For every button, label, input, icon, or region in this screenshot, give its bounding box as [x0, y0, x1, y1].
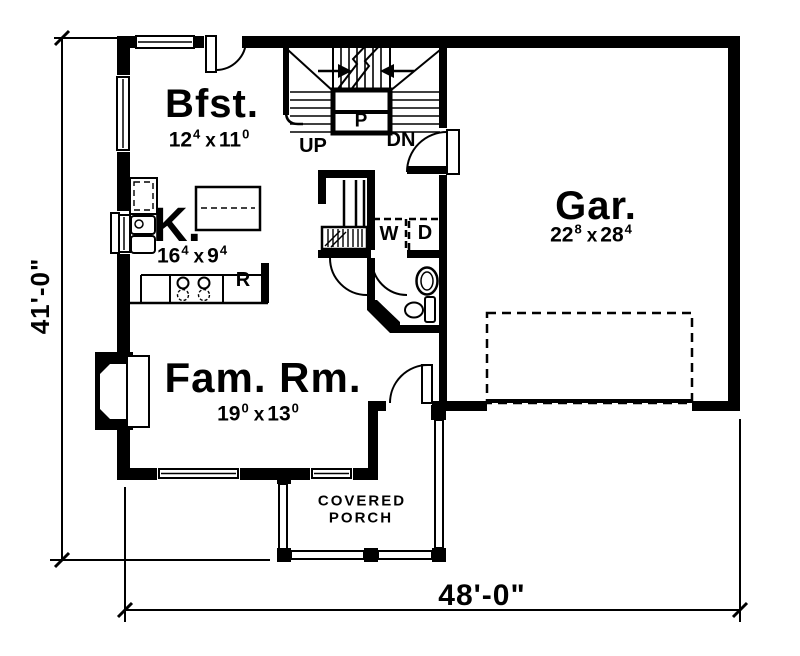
pantry-label: P [355, 112, 368, 131]
room-dims-family-room: 190x130 [217, 404, 301, 425]
door-breakfast-icon [206, 36, 216, 72]
vanity-icon [425, 297, 435, 322]
room-dims-breakfast: 124x110 [169, 130, 252, 151]
stairs-down-label: DN [387, 130, 416, 150]
washer-label: W [380, 224, 399, 244]
kitchen-wall-stub [261, 263, 269, 303]
dryer-label: D [418, 223, 432, 243]
porch-label-line1: COVERED [318, 494, 406, 509]
room-label-breakfast: Bfst. [165, 84, 259, 124]
porch-posts [277, 405, 446, 562]
porch-railing [277, 405, 446, 562]
refrigerator-label: R [236, 270, 250, 290]
door-bath-icon [372, 260, 407, 295]
door-porch-icon [422, 365, 432, 403]
bath-sink-icon [405, 303, 423, 318]
garage-door [487, 313, 692, 403]
floor-plan-drawing [0, 0, 800, 656]
room-dims-kitchen: 164x94 [157, 246, 229, 267]
floor-plan: Bfst. 124x110 K. 164x94 Gar. 228x284 Fam… [0, 0, 800, 656]
room-label-kitchen: K. [153, 202, 201, 250]
stairs-up-label: UP [299, 136, 327, 156]
fireplace-icon [95, 352, 149, 430]
bathroom [367, 250, 447, 333]
overall-dimension-bottom: 48'-0" [438, 581, 525, 611]
closet [318, 170, 375, 258]
room-label-garage: Gar. [555, 186, 637, 226]
door-garage-icon [447, 130, 459, 174]
room-dims-garage: 228x284 [550, 225, 634, 246]
porch-label-line2: PORCH [329, 511, 393, 526]
door-hall-icon [330, 258, 367, 295]
overall-dimension-left: 41'-0" [27, 258, 53, 335]
closet-rod-icon [322, 227, 367, 249]
window-kitchen-bump-icon [111, 213, 119, 253]
room-label-family-room: Fam. Rm. [164, 357, 361, 399]
